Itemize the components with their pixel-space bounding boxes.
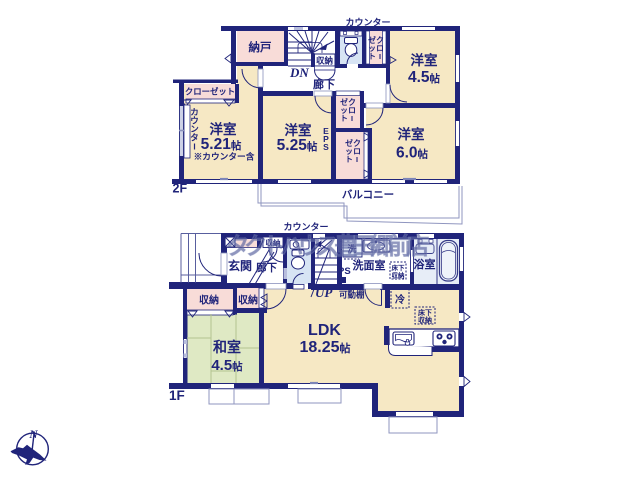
- svg-text:ト: ト: [345, 155, 353, 164]
- svg-text:廊下: 廊下: [313, 77, 335, 91]
- svg-text:洋室: 洋室: [398, 126, 425, 142]
- svg-text:収納: 収納: [199, 294, 219, 307]
- svg-text:洋室: 洋室: [210, 121, 237, 137]
- svg-text:1F: 1F: [169, 388, 185, 403]
- svg-text:床下: 床下: [392, 263, 406, 272]
- svg-text:バルコニー: バルコニー: [342, 189, 394, 201]
- svg-text:浴室: 浴室: [414, 257, 436, 271]
- svg-text:ト: ト: [340, 114, 348, 123]
- svg-text:収納: 収納: [316, 56, 333, 66]
- svg-text:N: N: [28, 429, 38, 441]
- svg-text:洗面室: 洗面室: [353, 258, 386, 272]
- svg-text:ロ: ロ: [376, 44, 384, 53]
- svg-text:洋室: 洋室: [411, 52, 438, 68]
- svg-text:ロ: ロ: [348, 106, 356, 115]
- svg-text:DN: DN: [289, 65, 309, 80]
- svg-text:タ: タ: [190, 133, 199, 143]
- svg-text:玄関: 玄関: [228, 258, 252, 273]
- svg-text:ロ: ロ: [353, 147, 361, 156]
- svg-text:※カウンター含: ※カウンター含: [194, 151, 255, 162]
- svg-text:収納: 収納: [418, 316, 432, 325]
- svg-text:UP: UP: [315, 285, 333, 300]
- svg-text:和室: 和室: [213, 339, 241, 355]
- svg-text:2F: 2F: [173, 182, 188, 196]
- svg-text:PS: PS: [338, 266, 351, 277]
- svg-text:カウンター: カウンター: [345, 17, 390, 28]
- svg-text:ト: ト: [368, 52, 376, 61]
- svg-text:S: S: [323, 142, 329, 152]
- svg-text:LDK: LDK: [308, 322, 341, 339]
- svg-text:納戸: 納戸: [249, 40, 272, 54]
- svg-text:冷: 冷: [395, 293, 405, 306]
- svg-text:可動棚: 可動棚: [339, 290, 365, 300]
- svg-text:クローゼット: クローゼット: [185, 87, 235, 97]
- svg-text:床下: 床下: [418, 308, 432, 317]
- svg-text:カウンター: カウンター: [283, 221, 328, 232]
- svg-text:洋室: 洋室: [285, 122, 312, 138]
- svg-text:タクトハウス豊田郷前店: タクトハウス豊田郷前店: [226, 232, 429, 259]
- svg-text:収納: 収納: [238, 294, 258, 307]
- svg-text:収納: 収納: [392, 271, 406, 280]
